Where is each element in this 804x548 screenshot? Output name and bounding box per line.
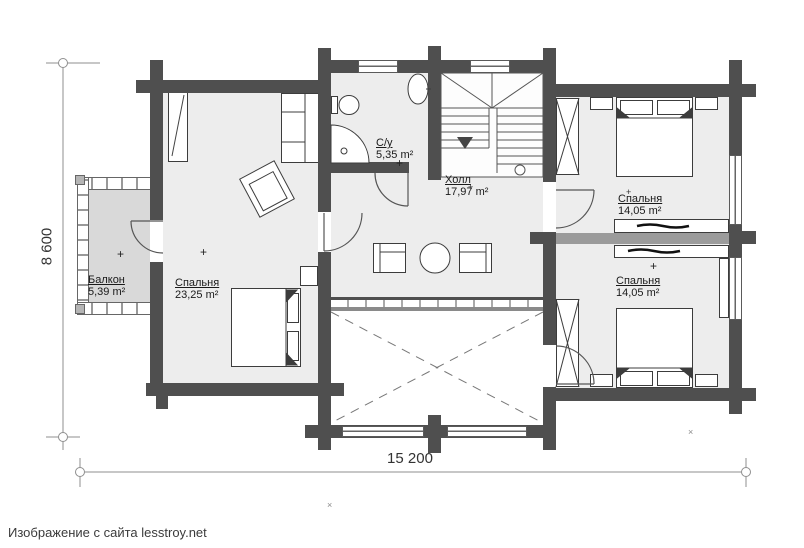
floor-plan: Балкон 5,39 m² Спальня 23,25 m² С/у 5,35… — [0, 0, 804, 548]
level-mark: + — [650, 261, 657, 271]
room-label-bedroom-top-right: Спальня 14,05 m² — [618, 193, 662, 217]
wardrobe — [281, 93, 319, 163]
room-area: 14,05 m² — [618, 205, 662, 217]
partition-end — [530, 232, 556, 244]
hall-armchair — [459, 243, 492, 273]
room-name: Спальня — [175, 277, 219, 289]
window — [447, 426, 527, 437]
room-label-bedroom-left: Спальня 23,25 m² — [175, 277, 219, 301]
wall — [543, 232, 556, 345]
level-mark: + — [468, 182, 473, 192]
console-table — [614, 219, 729, 233]
level-mark: + — [117, 249, 124, 259]
wardrobe — [556, 98, 579, 175]
window — [470, 60, 510, 73]
level-mark: + — [626, 187, 631, 197]
pillow — [287, 331, 299, 361]
wall — [543, 48, 556, 182]
radiator — [719, 258, 729, 318]
window — [729, 257, 742, 320]
nightstand — [590, 97, 613, 110]
room-name: С/у — [376, 137, 413, 149]
level-mark: + — [396, 158, 403, 168]
wall — [146, 383, 344, 396]
wall — [543, 388, 756, 401]
pillow — [620, 100, 653, 115]
void-open-to-below — [331, 311, 543, 425]
wall — [543, 84, 756, 97]
toilet-tank — [331, 96, 338, 114]
pillow — [657, 100, 690, 115]
log-end-stub — [428, 415, 441, 453]
dimension-width: 15 200 — [360, 450, 460, 467]
level-mark: + — [200, 247, 207, 257]
log-end-stub — [156, 396, 168, 409]
room-label-bathroom: С/у 5,35 m² — [376, 137, 413, 161]
window — [342, 426, 424, 437]
room-area: 5,39 m² — [88, 286, 125, 298]
room-area: 14,05 m² — [616, 287, 660, 299]
room-name: Спальня — [616, 275, 660, 287]
cross-mark: × — [688, 428, 693, 436]
room-name: Балкон — [88, 274, 125, 286]
wardrobe — [556, 299, 579, 387]
room-area: 23,25 m² — [175, 289, 219, 301]
log-end-stub — [729, 401, 742, 414]
wall — [428, 46, 441, 180]
partition-end — [729, 231, 756, 244]
window — [729, 155, 742, 225]
window-leaf — [168, 89, 188, 162]
window — [358, 60, 398, 73]
room-label-bedroom-bottom-right: Спальня 14,05 m² — [616, 275, 660, 299]
nightstand — [590, 374, 613, 387]
wall — [543, 387, 556, 450]
pillow — [287, 293, 299, 323]
pillow — [620, 371, 653, 386]
partition-wall — [556, 233, 729, 244]
wall — [318, 252, 331, 450]
wall — [318, 48, 331, 212]
room-area: 5,35 m² — [376, 149, 413, 161]
nightstand — [300, 266, 318, 286]
wall — [150, 262, 163, 383]
cross-mark: × — [327, 501, 332, 509]
dimension-height: 8 600 — [39, 202, 56, 292]
gallery-railing — [331, 297, 543, 311]
room-label-hall: Холл 17,97 m² — [445, 174, 488, 198]
room-name: Спальня — [618, 193, 662, 205]
room-label-balcony: Балкон 5,39 m² — [88, 274, 125, 298]
wall — [136, 80, 331, 93]
railing-post — [75, 304, 85, 314]
room-name: Холл — [445, 174, 488, 186]
railing-post — [75, 175, 85, 185]
armchair-seat — [249, 171, 288, 212]
source-caption: Изображение с сайта lesstroy.net — [8, 525, 207, 540]
wall — [150, 60, 163, 220]
hall-armchair — [373, 243, 406, 273]
room-area: 17,97 m² — [445, 186, 488, 198]
nightstand — [695, 97, 718, 110]
nightstand — [695, 374, 718, 387]
pillow — [657, 371, 690, 386]
console-table — [614, 245, 729, 258]
